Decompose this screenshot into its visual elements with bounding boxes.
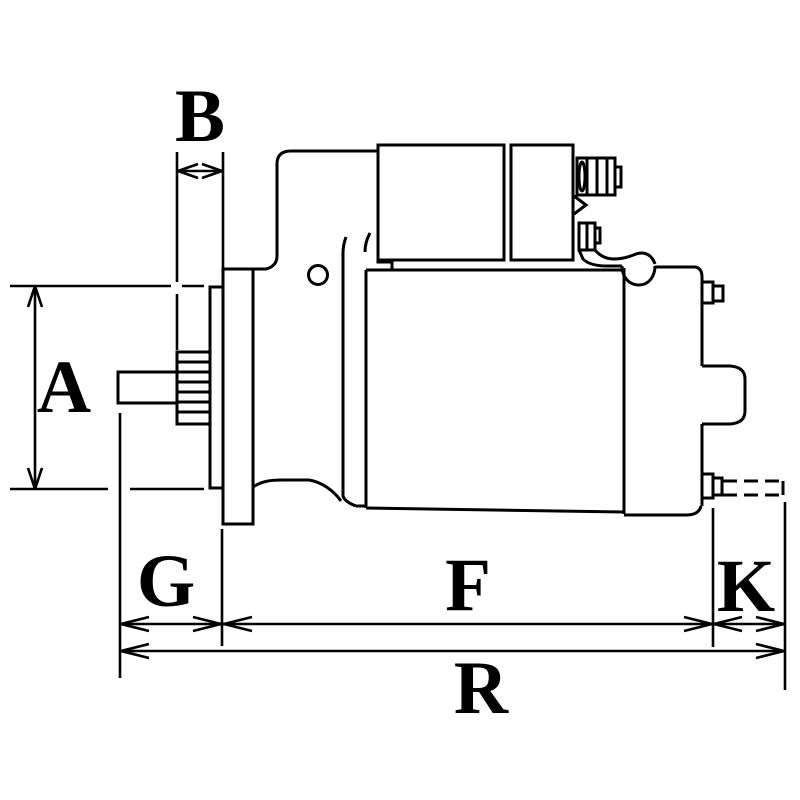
dimension-label-g: G [137, 540, 195, 623]
technical-drawing-canvas: B A G F K R [0, 0, 800, 800]
pilot-plate [210, 287, 223, 488]
dimension-label-f: F [445, 544, 491, 627]
dimension-label-b: B [175, 75, 225, 158]
motor-outline [118, 151, 783, 524]
through-bolt-bottom [702, 474, 722, 498]
dimension-label-k: K [717, 545, 775, 628]
dimension-label-r: R [454, 647, 509, 730]
dimension-b [177, 152, 223, 350]
pinion-gear [177, 352, 210, 424]
dimension-label-a: A [37, 346, 91, 429]
through-bolt-top [702, 282, 723, 303]
hidden-bolt-outline [723, 481, 783, 495]
starter-motor-diagram: B A G F K R [0, 0, 800, 800]
solenoid-body [378, 145, 504, 260]
solenoid [378, 145, 655, 266]
drive-shaft [118, 372, 177, 403]
dimension-lines [10, 152, 785, 690]
terminal-strap [579, 250, 655, 266]
dimension-r [120, 644, 785, 658]
solenoid-cap [511, 145, 573, 260]
motor-terminal [579, 223, 600, 250]
drive-end-bracket [253, 151, 378, 269]
rear-boss [702, 366, 745, 424]
mounting-flange [223, 269, 253, 524]
inspection-hole [309, 266, 328, 285]
battery-terminal [577, 158, 621, 195]
